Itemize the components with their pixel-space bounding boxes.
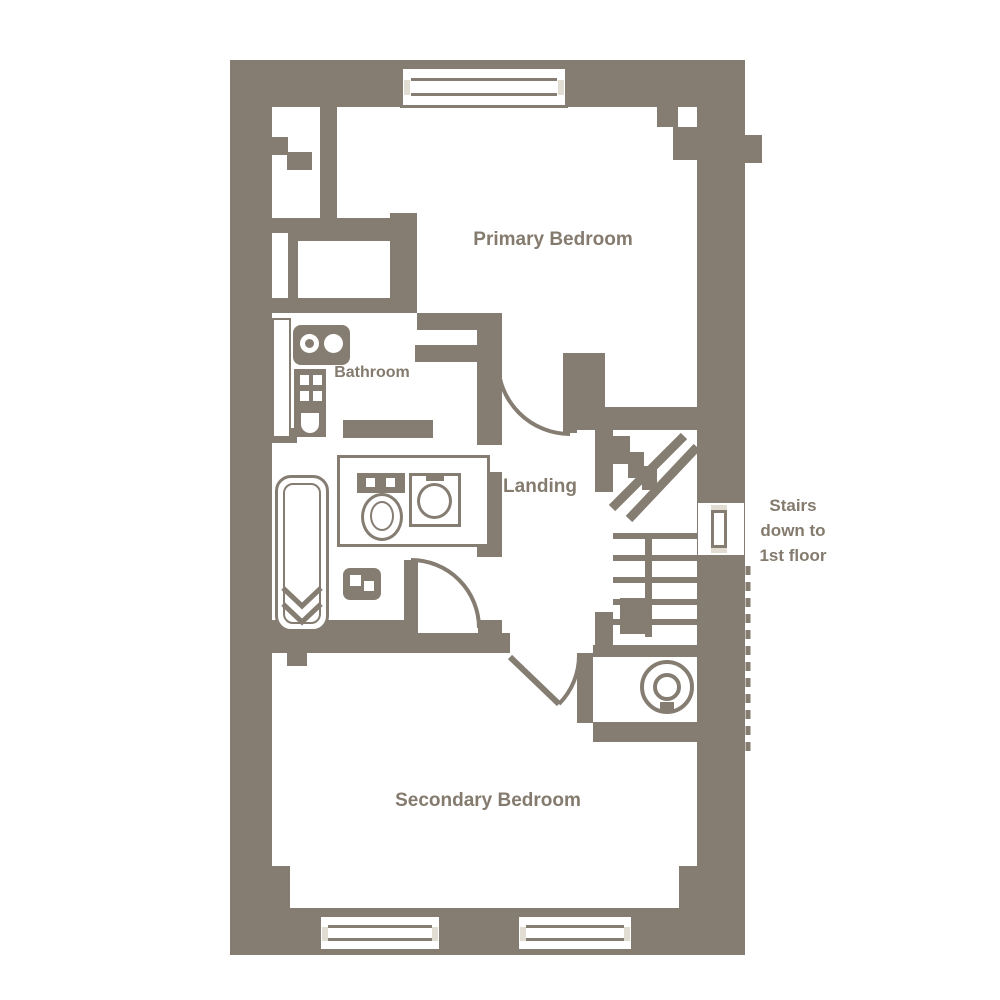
wash-basin <box>409 473 461 527</box>
wall-niche-step <box>272 137 288 155</box>
wall-niche-stub <box>287 152 312 170</box>
wall-bedroom-left <box>320 107 337 219</box>
door-leaf-bathroom <box>404 560 418 630</box>
door-swing-arc-secondary <box>559 655 579 704</box>
window <box>318 914 442 952</box>
door-swing-arc-bathroom <box>411 560 479 628</box>
toilet <box>357 473 405 493</box>
door-leaf-secondary <box>510 657 559 704</box>
secondary-bedroom-label: Secondary Bedroom <box>395 790 581 812</box>
wall-secondary-top-stub <box>287 653 307 666</box>
wall-stair-top <box>577 407 697 430</box>
wall-cupboard-left <box>577 653 593 723</box>
wall-cupboard-bottom <box>593 722 697 742</box>
wall-stair-left-upper <box>595 430 613 492</box>
wall-door-hinge-block <box>577 353 605 415</box>
primary-bedroom-label: Primary Bedroom <box>473 229 632 251</box>
hot-water-cylinder-notch <box>660 702 674 713</box>
wall-stair-left-lower <box>595 612 613 645</box>
wall-stub-bottom-left <box>272 866 290 910</box>
wall-stub-bedroom-corner-a <box>657 107 678 127</box>
wall-f <box>477 330 502 445</box>
window <box>516 914 634 952</box>
stair-step-block <box>642 466 657 490</box>
window <box>400 66 568 108</box>
wall-stub-exterior-right <box>745 135 762 163</box>
stair-winder-block <box>620 598 646 634</box>
wall-secondary-top <box>272 633 510 653</box>
hot-water-cylinder-inner <box>653 673 681 701</box>
wall-e <box>417 313 502 330</box>
shelf-unit <box>343 568 381 600</box>
wall-outer-left <box>230 60 272 955</box>
stairs-annotation-line1: Stairs <box>735 493 851 518</box>
radiator <box>272 318 291 438</box>
stairs-annotation-line2: down to <box>735 518 851 543</box>
landing-label: Landing <box>503 476 577 498</box>
wardrobe-interior <box>298 241 392 298</box>
wall-cupboard-top <box>593 645 697 657</box>
wash-basin <box>293 325 350 365</box>
wall-outer-bottom <box>230 908 745 955</box>
stairs-annotation: Stairs down to 1st floor <box>735 493 851 568</box>
wall-g <box>415 345 477 362</box>
stair-tread <box>613 533 697 539</box>
bathtub <box>275 475 329 632</box>
floor-plan: Primary Bedroom Bathroom Landing Seconda… <box>0 0 1000 1000</box>
door-swing-arc-primary <box>498 362 570 434</box>
stair-tread <box>613 577 697 583</box>
wall-stub-bottom-right <box>679 866 697 910</box>
vanity-unit <box>337 455 490 547</box>
bathroom-label: Bathroom <box>334 364 410 382</box>
toilet <box>294 369 326 437</box>
door-leaf-primary-bedroom <box>563 353 577 433</box>
wall-stub-bedroom-corner-b <box>673 127 697 160</box>
wall-bathroom-mid <box>343 420 433 438</box>
stair-divider <box>645 533 652 637</box>
stair-tread <box>613 555 697 561</box>
wall-b <box>272 298 417 313</box>
stairs-annotation-line3: 1st floor <box>735 543 851 568</box>
